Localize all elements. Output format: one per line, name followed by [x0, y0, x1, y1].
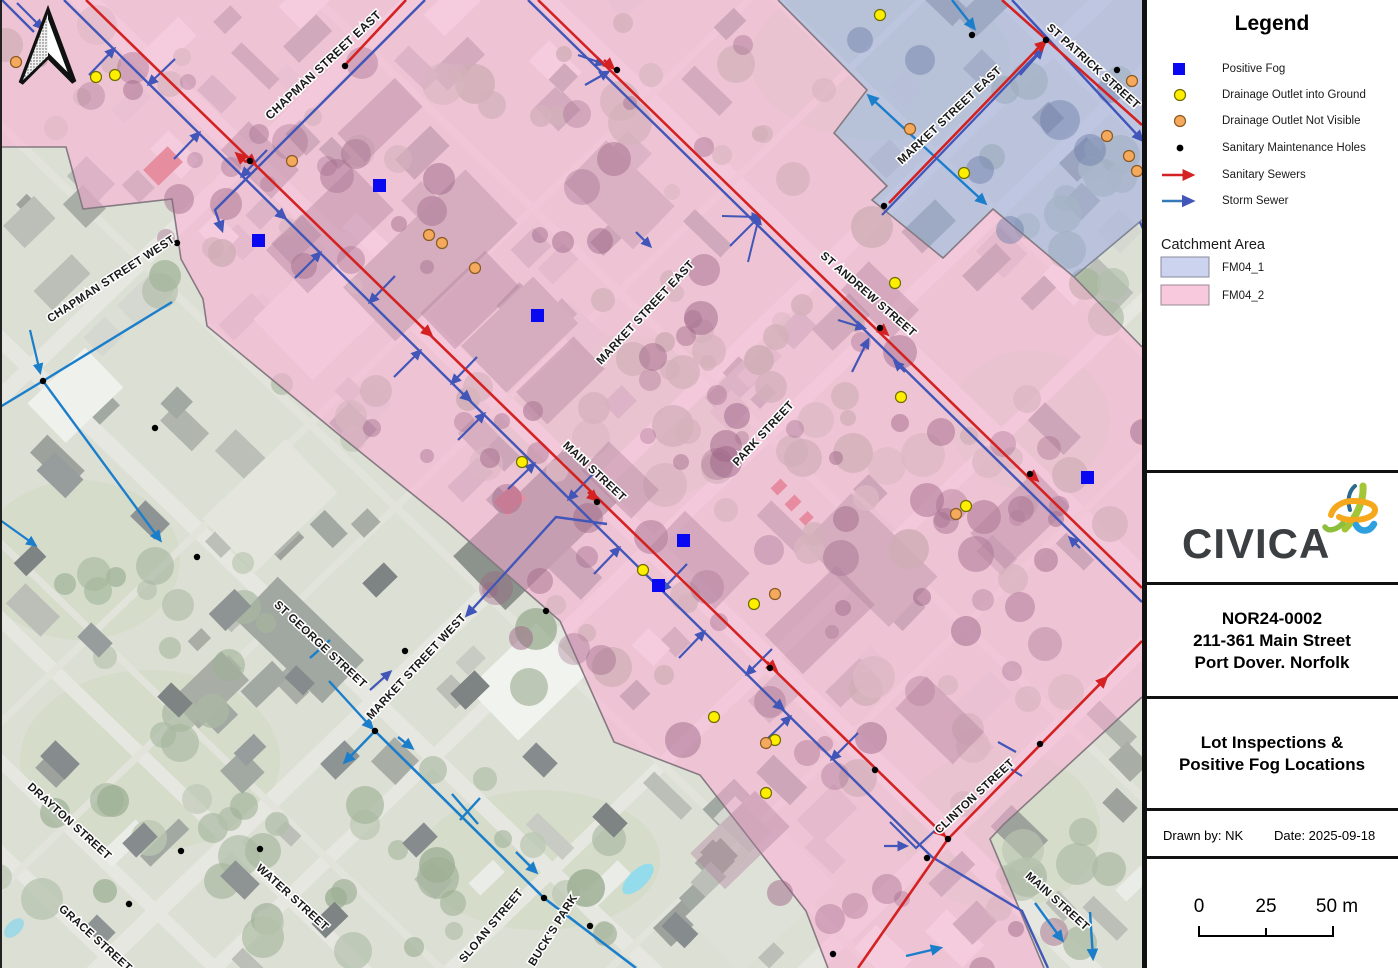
svg-text:Drainage Outlet into Ground: Drainage Outlet into Ground: [1222, 89, 1366, 101]
svg-text:Lot Inspections &: Lot Inspections &: [1201, 733, 1344, 752]
svg-text:25: 25: [1255, 896, 1276, 917]
svg-text:Positive Fog: Positive Fog: [1222, 63, 1285, 75]
svg-text:Positive Fog Locations: Positive Fog Locations: [1179, 755, 1365, 774]
svg-text:Sanitary Maintenance Holes: Sanitary Maintenance Holes: [1222, 142, 1366, 154]
svg-text:Port Dover. Norfolk: Port Dover. Norfolk: [1195, 653, 1350, 672]
svg-text:0: 0: [1194, 896, 1205, 917]
svg-text:CIVICA: CIVICA: [1182, 520, 1330, 567]
svg-text:Drawn by: NK: Drawn by: NK: [1163, 828, 1244, 843]
svg-text:Sanitary Sewers: Sanitary Sewers: [1222, 169, 1306, 181]
svg-text:Storm Sewer: Storm Sewer: [1222, 195, 1289, 207]
svg-text:Date: 2025-09-18: Date: 2025-09-18: [1274, 828, 1375, 843]
svg-text:NOR24-0002: NOR24-0002: [1222, 609, 1322, 628]
svg-text:Legend: Legend: [1235, 12, 1310, 35]
svg-text:211-361 Main Street: 211-361 Main Street: [1193, 631, 1351, 650]
svg-text:Catchment Area: Catchment Area: [1161, 237, 1266, 253]
svg-text:FM04_1: FM04_1: [1222, 262, 1264, 274]
svg-text:Drainage Outlet Not Visible: Drainage Outlet Not Visible: [1222, 115, 1361, 127]
svg-text:FM04_2: FM04_2: [1222, 290, 1264, 302]
svg-text:50 m: 50 m: [1316, 896, 1358, 917]
